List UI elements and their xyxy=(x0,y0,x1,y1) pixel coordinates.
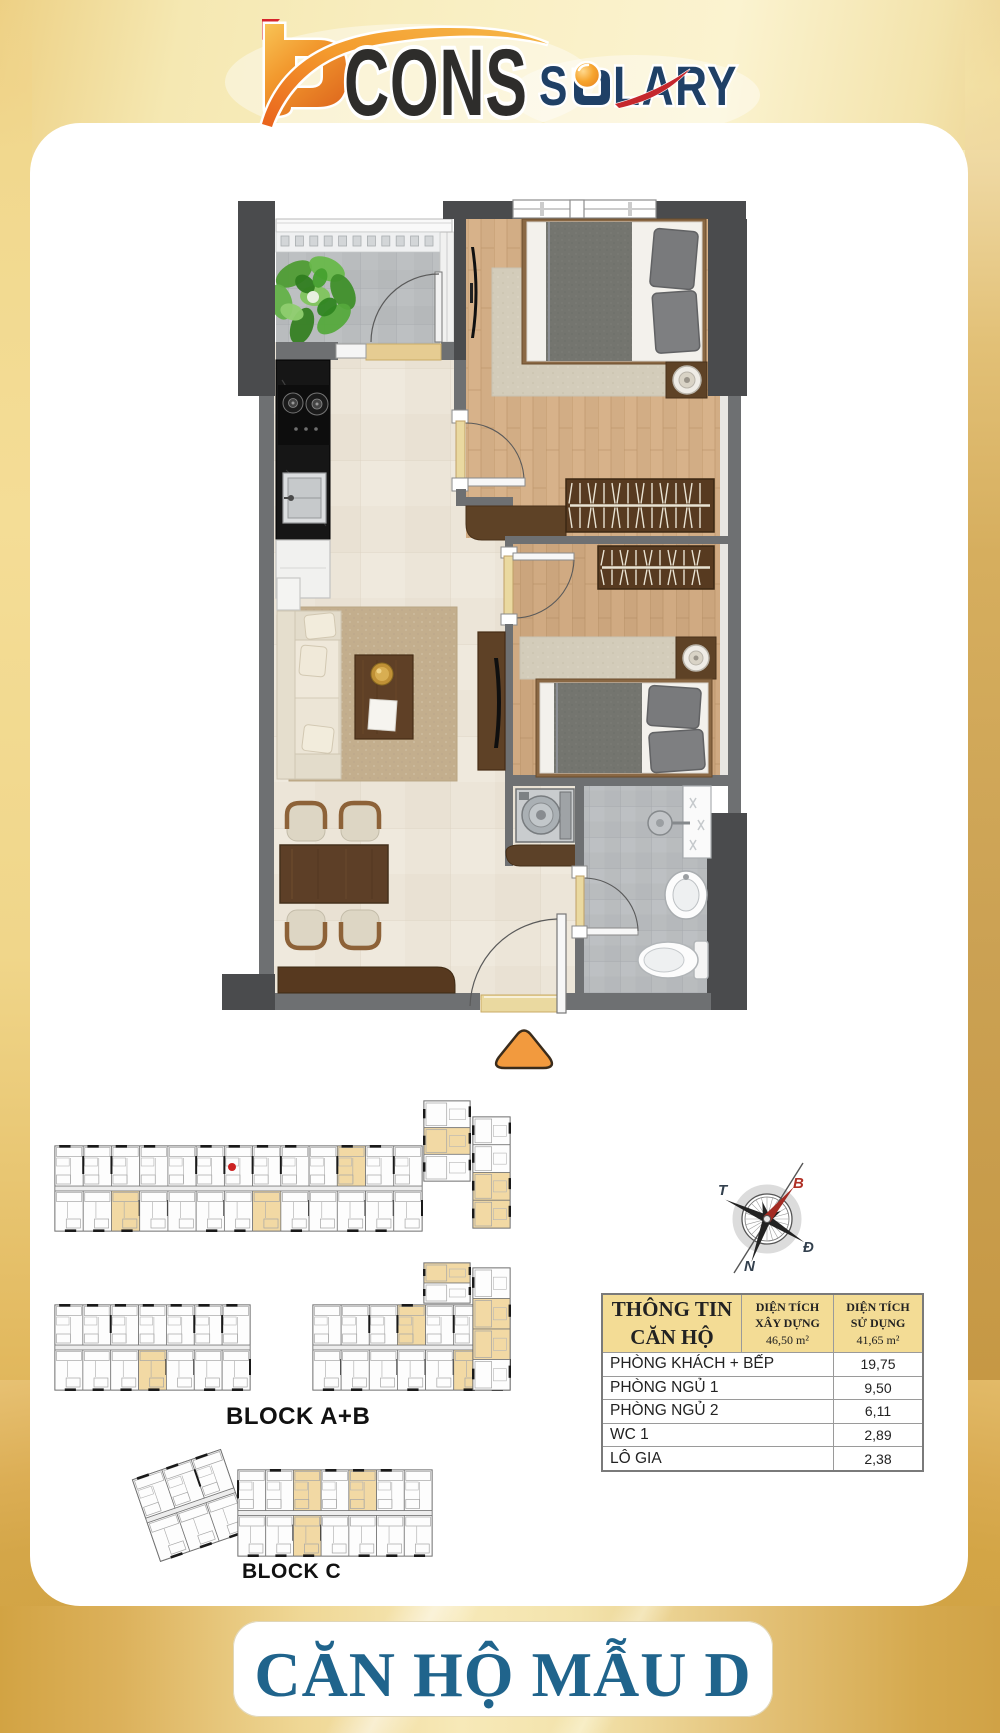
svg-text:T: T xyxy=(718,1182,729,1199)
svg-text:LARY: LARY xyxy=(613,54,738,117)
svg-text:S: S xyxy=(539,54,567,117)
svg-text:CONS: CONS xyxy=(344,30,528,136)
svg-text:N: N xyxy=(744,1258,756,1275)
svg-text:Đ: Đ xyxy=(803,1239,814,1256)
svg-text:B: B xyxy=(793,1175,804,1192)
